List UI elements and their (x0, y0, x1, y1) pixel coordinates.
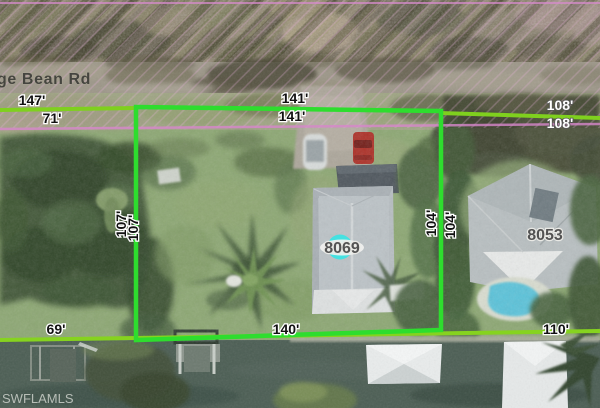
svg-text:8053: 8053 (527, 227, 563, 244)
svg-text:108': 108' (547, 115, 574, 131)
svg-text:140': 140' (273, 321, 300, 337)
svg-text:141': 141' (282, 90, 309, 106)
svg-text:108': 108' (547, 97, 574, 113)
svg-text:71': 71' (43, 110, 62, 126)
svg-text:SWFLAMLS: SWFLAMLS (2, 391, 74, 406)
svg-text:104': 104' (442, 212, 458, 239)
svg-text:8069: 8069 (324, 240, 360, 257)
svg-text:ge Bean Rd: ge Bean Rd (0, 71, 91, 88)
svg-text:110': 110' (543, 321, 569, 337)
svg-text:147': 147' (19, 92, 46, 108)
svg-text:69': 69' (47, 321, 66, 337)
svg-text:141': 141' (279, 108, 306, 124)
svg-text:104': 104' (423, 210, 439, 237)
svg-text:107': 107' (125, 215, 141, 242)
